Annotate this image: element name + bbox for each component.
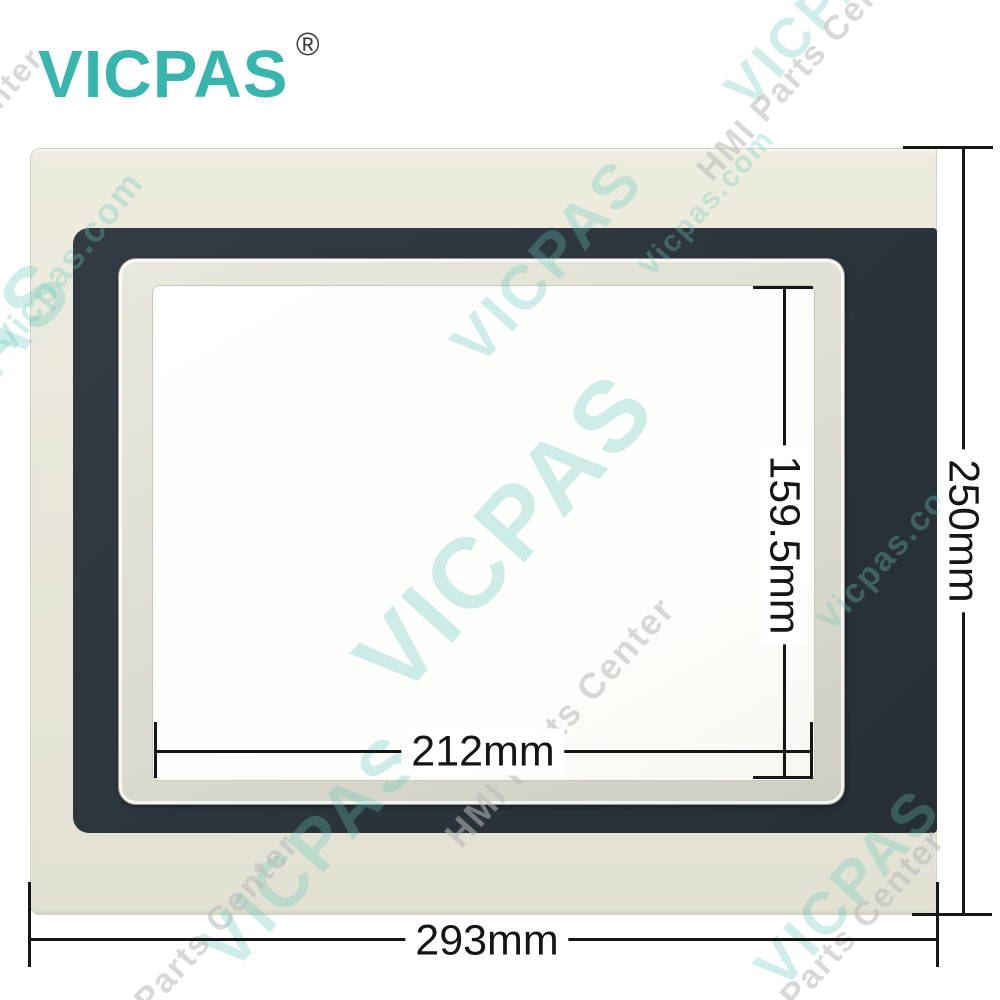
dim-outer-height-label: 250mm (940, 449, 987, 612)
display-window (155, 288, 812, 778)
dim-outer-width-label: 293mm (405, 918, 568, 965)
dim-250-tick-top (903, 146, 993, 149)
dim-250-tick-bottom (912, 913, 992, 916)
registered-trademark-icon: ® (296, 26, 320, 63)
dim-212-tick-left (154, 722, 157, 778)
watermark-brand: VICPAS (715, 0, 909, 118)
dim-293-ext-right (936, 882, 939, 967)
dim-window-width-label: 212mm (401, 729, 564, 776)
vicpas-logo: VICPAS ® (38, 36, 288, 113)
vicpas-logo-text: VICPAS (38, 37, 288, 112)
dim-159-tick-top (753, 286, 813, 289)
product-photo-canvas: VICPAS ® VICPAS VICPAS VICPAS VICPAS VIC… (0, 0, 1000, 1000)
dim-212-tick-right (810, 722, 813, 779)
dim-window-height-label: 159.5mm (761, 445, 808, 644)
dim-293-ext-left (28, 882, 31, 967)
dim-159-tick-bottom (753, 776, 811, 779)
